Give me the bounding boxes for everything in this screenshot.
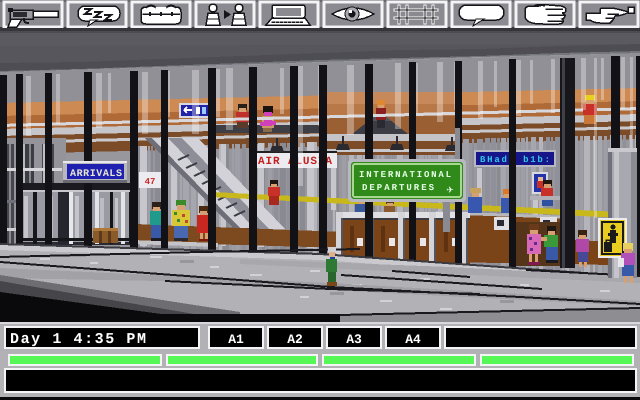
- svg-text:✈: ✈: [446, 183, 453, 197]
- svg-text:47: 47: [145, 177, 156, 187]
- svg-text:A4: A4: [405, 332, 421, 347]
- svg-text:A1: A1: [228, 332, 244, 347]
- svg-text:Day 1 4:35 PM: Day 1 4:35 PM: [10, 331, 146, 348]
- svg-text:A2: A2: [287, 332, 303, 347]
- svg-text:A3: A3: [346, 332, 362, 347]
- svg-text:DEPARTURES: DEPARTURES: [362, 183, 435, 193]
- svg-text:ARRIVALS: ARRIVALS: [70, 169, 122, 180]
